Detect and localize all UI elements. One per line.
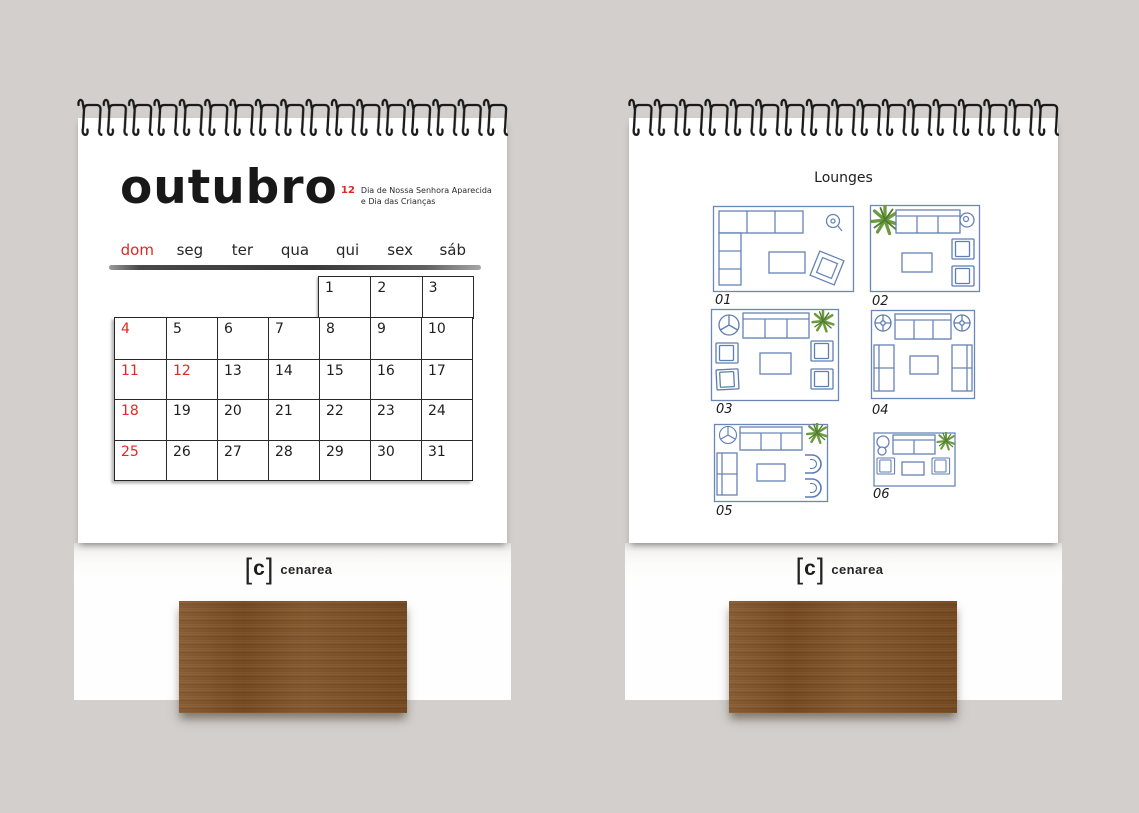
weekday-qui: qui: [321, 241, 374, 259]
armchair: [716, 369, 739, 390]
day-cell: 7: [268, 318, 319, 359]
day-cell: 22: [319, 399, 370, 440]
holiday-note: 12 Dia de Nossa Senhora Aparecida e Dia …: [341, 185, 492, 207]
wooden-stand: [179, 601, 407, 713]
layout-label-02: 02: [872, 294, 889, 309]
sofa: [743, 313, 809, 338]
weekday-sab: sáb: [426, 241, 479, 259]
coffee-table: [757, 464, 785, 481]
day-cell: 28: [268, 440, 319, 481]
brand-logo: [c] cenarea: [625, 556, 1054, 583]
day-cell: 4: [115, 318, 166, 359]
day-cell: 31: [421, 440, 472, 481]
armchair: [716, 343, 738, 363]
armchair: [877, 458, 895, 474]
day-cell: 29: [319, 440, 370, 481]
logo-bracket-open-icon: [: [245, 555, 253, 583]
lounge-sketch-04: [870, 309, 976, 400]
loveseat: [874, 345, 894, 391]
layout-label-03: 03: [716, 402, 733, 417]
calendar-page-lounges: Lounges 01: [629, 118, 1058, 543]
loveseat: [952, 345, 972, 391]
day-cell: 20: [217, 399, 268, 440]
brand-name: cenarea: [831, 562, 883, 577]
calendar-page-october: outubro 12 Dia de Nossa Senhora Aparecid…: [78, 118, 507, 543]
weekday-seg: seg: [164, 241, 217, 259]
lounge-sketch-06: [873, 432, 956, 487]
lounge-sketch-05: [713, 423, 829, 503]
sofa: [895, 314, 951, 339]
round-chair-icon: [720, 427, 737, 444]
logo-bracket-open-icon: [: [796, 555, 804, 583]
day-cell: 15: [319, 359, 370, 400]
day-cell: 5: [166, 318, 217, 359]
coffee-table: [769, 252, 805, 273]
ottoman-chair: [810, 251, 844, 285]
day-cell: 2: [370, 277, 421, 318]
side-table-icon: [954, 315, 970, 331]
side-table-icon: [877, 436, 889, 455]
corner-sectional-sofa: [719, 211, 803, 285]
weekday-dom: dom: [111, 241, 164, 259]
day-cell: 11: [115, 359, 166, 400]
layout-label-04: 04: [872, 403, 889, 418]
floor-lamp-icon: [827, 215, 843, 232]
coffee-table: [902, 462, 924, 475]
plant-icon: [807, 423, 827, 443]
weekday-header-row: dom seg ter qua qui sex sáb: [111, 241, 479, 259]
spiral-binding-icon: [628, 97, 1059, 139]
day-cell: 6: [217, 318, 268, 359]
lounge-sketch-01: [712, 205, 855, 293]
day-cell: 19: [166, 399, 217, 440]
page-title: Lounges: [629, 170, 1058, 186]
side-table-icon: [875, 315, 891, 331]
day-cell: 3: [422, 277, 473, 318]
layout-label-01: 01: [715, 293, 732, 308]
month-title: outubro: [120, 160, 338, 215]
coffee-table: [760, 353, 791, 374]
day-cell: 16: [370, 359, 421, 400]
layout-label-05: 05: [716, 504, 733, 519]
curved-chair: [805, 479, 821, 497]
brand-logo: [c] cenarea: [74, 556, 503, 583]
day-cell: 23: [370, 399, 421, 440]
day-cell: 25: [115, 440, 166, 481]
sofa: [893, 435, 935, 454]
plant-icon: [872, 207, 899, 234]
day-cell: 24: [421, 399, 472, 440]
weekday-qua: qua: [269, 241, 322, 259]
weekday-sex: sex: [374, 241, 427, 259]
loveseat: [717, 453, 737, 495]
logo-bracket-close-icon: ]: [817, 555, 825, 583]
logo-letter: c: [804, 558, 816, 579]
day-cell: 13: [217, 359, 268, 400]
day-cell: 14: [268, 359, 319, 400]
armchair: [952, 239, 974, 259]
day-cell: 17: [421, 359, 472, 400]
holiday-day-number: 12: [341, 185, 355, 207]
sofa: [896, 210, 960, 233]
spiral-binding-icon: [77, 97, 508, 139]
brand-name: cenarea: [280, 562, 332, 577]
calendar-week1-box: 1 2 3: [318, 276, 474, 319]
calendar-lounges: [c] cenarea Lounges: [629, 97, 1058, 719]
day-cell: 18: [115, 399, 166, 440]
plant-icon: [937, 432, 954, 449]
round-chair-icon: [719, 315, 739, 335]
lounge-sketch-02: [869, 204, 981, 293]
day-cell: 8: [319, 318, 370, 359]
armchair: [811, 341, 833, 361]
day-cell: 26: [166, 440, 217, 481]
day-cell: 10: [421, 318, 472, 359]
wooden-stand: [729, 601, 957, 713]
armchair: [952, 266, 974, 286]
armchair: [932, 458, 950, 474]
day-cell: 1: [319, 277, 370, 318]
logo-bracket-close-icon: ]: [266, 555, 274, 583]
day-cell: 30: [370, 440, 421, 481]
coffee-table: [910, 356, 938, 374]
header-underline: [109, 265, 481, 270]
sofa: [740, 427, 802, 450]
day-cell: 9: [370, 318, 421, 359]
coffee-table: [902, 253, 932, 272]
calendar-grid: 4 5 6 7 8 9 10 11 12 13 14 15 16 17 18 1…: [114, 317, 473, 481]
holiday-note-line2: e Dia das Crianças: [361, 196, 492, 207]
side-table-icon: [960, 213, 974, 227]
layout-label-06: 06: [873, 487, 890, 502]
holiday-note-line1: Dia de Nossa Senhora Aparecida: [361, 185, 492, 196]
logo-letter: c: [253, 558, 265, 579]
plant-icon: [813, 311, 834, 332]
day-cell: 27: [217, 440, 268, 481]
calendar-october: [c] cenarea outubro 12 Dia de Nossa Senh…: [78, 97, 507, 719]
day-cell-holiday: 12: [166, 359, 217, 400]
curved-chair: [805, 455, 821, 473]
weekday-ter: ter: [216, 241, 269, 259]
armchair: [811, 369, 833, 389]
lounge-sketch-03: [710, 308, 840, 402]
day-cell: 21: [268, 399, 319, 440]
